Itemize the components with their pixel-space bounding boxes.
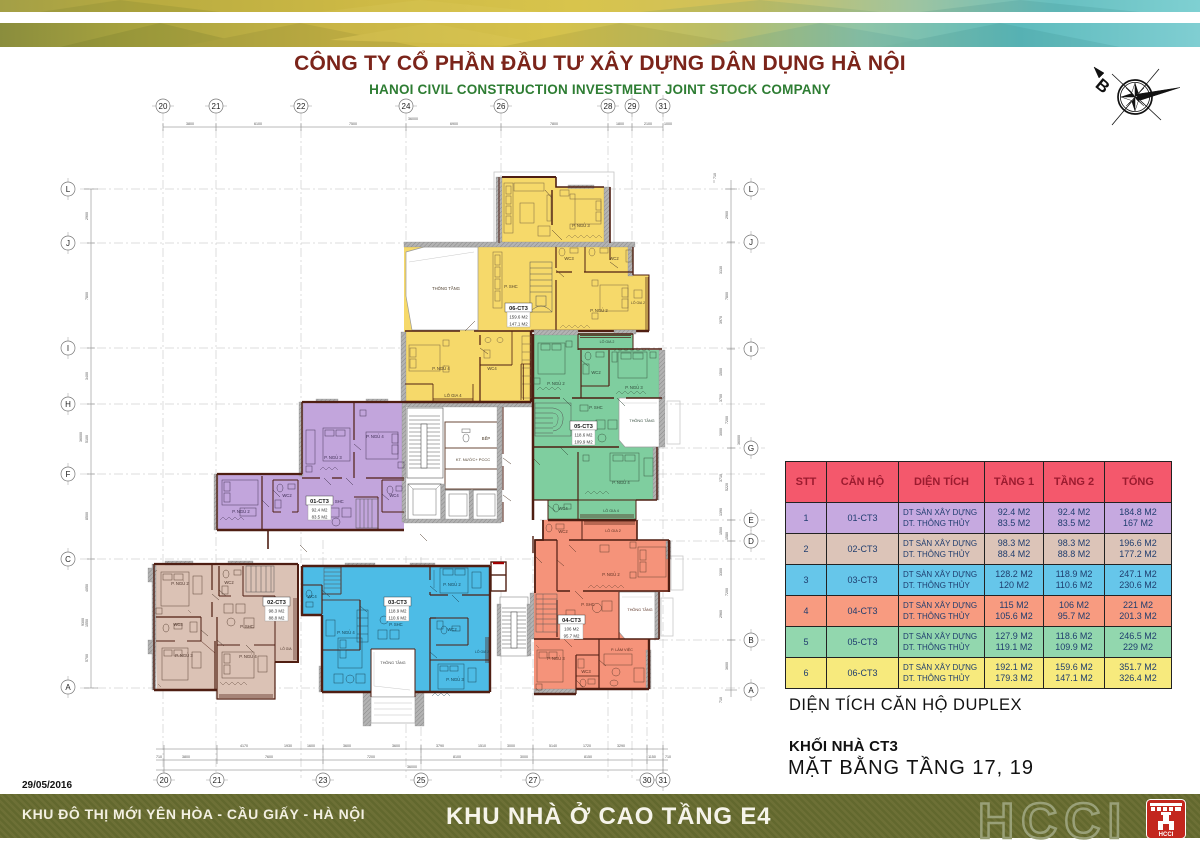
svg-text:1150: 1150 [648,755,656,759]
svg-text:23: 23 [319,776,328,785]
svg-text:36000: 36000 [407,765,417,769]
svg-text:BẾP: BẾP [482,436,491,441]
svg-text:WC3: WC3 [581,669,591,674]
svg-text:3790: 3790 [436,744,444,748]
svg-text:P. NGỦ 3: P. NGỦ 3 [547,656,565,661]
svg-text:THÔNG TẦNG: THÔNG TẦNG [432,286,460,291]
svg-text:P. SHC: P. SHC [389,622,402,627]
svg-text:159.6 M2: 159.6 M2 [509,315,528,320]
svg-text:2900: 2900 [725,211,729,219]
svg-text:2100: 2100 [644,122,652,126]
svg-text:F: F [66,470,71,479]
svg-text:P. SHC: P. SHC [240,624,253,629]
svg-text:WC2: WC2 [591,370,601,375]
svg-text:7500: 7500 [349,122,357,126]
svg-text:3000: 3000 [520,755,528,759]
svg-text:26: 26 [497,102,506,111]
svg-text:WC4: WC4 [389,493,399,498]
svg-text:P. NGỦ 2: P. NGỦ 2 [232,509,250,514]
svg-text:21: 21 [212,102,221,111]
svg-text:110.6 M2: 110.6 M2 [389,616,408,621]
svg-text:LÔ GIA 2: LÔ GIA 2 [631,300,645,305]
svg-text:3800: 3800 [182,755,190,759]
svg-text:P. SHC: P. SHC [504,284,517,289]
svg-text:2900: 2900 [85,212,89,220]
svg-text:LÔ GIA 4: LÔ GIA 4 [444,393,462,398]
svg-text:LÔ GIA 4: LÔ GIA 4 [603,508,619,513]
svg-text:7200: 7200 [725,416,729,424]
svg-text:B: B [1092,75,1114,97]
svg-text:P. NGỦ 4: P. NGỦ 4 [612,480,630,485]
svg-text:P. NGỦ 2: P. NGỦ 2 [171,581,189,586]
svg-text:1500: 1500 [719,527,723,535]
svg-text:I: I [67,344,69,353]
svg-text:710: 710 [665,755,671,759]
svg-text:J: J [749,238,753,247]
svg-text:P. NGỦ 2: P. NGỦ 2 [602,572,620,577]
svg-text:6900: 6900 [450,122,458,126]
svg-text:7600: 7600 [265,755,273,759]
svg-text:109.9 M2: 109.9 M2 [574,440,593,445]
svg-text:106 M2: 106 M2 [564,627,579,632]
svg-text:7800: 7800 [550,122,558,126]
svg-text:3800: 3800 [186,122,194,126]
svg-text:31: 31 [659,776,668,785]
svg-text:4050: 4050 [85,584,89,592]
svg-text:LÔ GIA: LÔ GIA [280,646,292,651]
svg-text:5100: 5100 [85,435,89,443]
svg-text:P. NGỦ 4: P. NGỦ 4 [337,630,355,635]
svg-text:WC3: WC3 [564,256,574,261]
svg-text:P. SHC: P. SHC [589,405,602,410]
svg-text:24: 24 [402,102,411,111]
svg-text:25: 25 [417,776,426,785]
svg-text:3290: 3290 [617,744,625,748]
svg-text:04-CT3: 04-CT3 [562,618,581,624]
svg-text:01-CT3: 01-CT3 [310,499,329,505]
svg-text:710: 710 [719,697,723,703]
svg-text:P. NGỦ 3: P. NGỦ 3 [175,653,193,658]
svg-text:5140: 5140 [549,744,557,748]
svg-text:E: E [748,516,753,525]
svg-text:P. NGỦ 4: P. NGỦ 4 [432,366,450,371]
svg-text:P. NGỦ 3: P. NGỦ 3 [324,455,342,460]
svg-text:1510: 1510 [478,744,486,748]
svg-text:A: A [748,686,754,695]
svg-text:THÔNG TẦNG: THÔNG TẦNG [380,660,405,665]
svg-text:8100: 8100 [453,755,461,759]
svg-text:05-CT3: 05-CT3 [574,424,593,430]
svg-text:6100: 6100 [254,122,262,126]
svg-text:118.9 M2: 118.9 M2 [389,609,408,614]
svg-text:P. NGỦ 3: P. NGỦ 3 [625,385,643,390]
svg-text:147.1 M2: 147.1 M2 [509,322,528,327]
svg-text:3710: 3710 [719,474,723,482]
svg-text:3970: 3970 [719,316,723,324]
svg-text:83.5 M2: 83.5 M2 [312,515,328,520]
svg-text:3600: 3600 [725,662,729,670]
svg-text:P. SHC: P. SHC [581,602,594,607]
svg-text:20: 20 [159,102,168,111]
svg-text:1550: 1550 [85,619,89,627]
svg-text:98.3 M2: 98.3 M2 [269,609,285,614]
svg-text:1600: 1600 [307,744,315,748]
svg-text:9300: 9300 [81,618,85,626]
svg-text:36000: 36000 [737,435,741,445]
svg-text:7800: 7800 [85,292,89,300]
svg-text:HCCI: HCCI [1159,832,1174,838]
svg-text:29: 29 [628,102,637,111]
svg-text:36000: 36000 [79,432,83,442]
svg-text:THÔNG TẦNG: THÔNG TẦNG [629,418,654,423]
svg-text:P. NGỦ 2: P. NGỦ 2 [443,582,461,587]
svg-text:WC2: WC2 [447,627,457,632]
svg-text:36000: 36000 [408,117,418,121]
svg-text:1580: 1580 [725,532,729,540]
svg-text:5220: 5220 [725,483,729,491]
svg-text:WC4: WC4 [487,366,497,371]
svg-text:WC3: WC3 [173,622,183,627]
svg-text:WC2: WC2 [609,256,619,261]
svg-text:4170: 4170 [240,744,248,748]
svg-text:WC2: WC2 [558,529,568,534]
svg-text:22: 22 [297,102,306,111]
svg-text:C: C [65,555,71,564]
svg-text:WC2: WC2 [282,493,292,498]
svg-text:7800: 7800 [725,292,729,300]
svg-text:L: L [749,185,754,194]
svg-text:3600: 3600 [343,744,351,748]
svg-text:LÔ GIA 2: LÔ GIA 2 [600,339,615,344]
svg-text:7200: 7200 [367,755,375,759]
svg-text:P. NGỦ 2: P. NGỦ 2 [590,308,608,313]
svg-text:1930: 1930 [284,744,292,748]
svg-text:1390: 1390 [719,508,723,516]
svg-text:3600: 3600 [392,744,400,748]
svg-text:LÔ GIA 2: LÔ GIA 2 [475,649,489,654]
svg-text:D: D [748,537,754,546]
svg-text:92.4 M2: 92.4 M2 [312,508,328,513]
svg-text:3130: 3130 [719,266,723,274]
svg-text:L: L [66,185,71,194]
svg-text:1800: 1800 [616,122,624,126]
svg-text:8500: 8500 [85,512,89,520]
svg-text:J: J [66,239,70,248]
svg-text:KT. NƯỚC+ PCCC: KT. NƯỚC+ PCCC [456,457,490,462]
svg-text:5700: 5700 [85,654,89,662]
svg-text:21: 21 [213,776,222,785]
svg-text:118.6 M2: 118.6 M2 [575,433,594,438]
svg-text:7200: 7200 [725,588,729,596]
svg-text:H: H [65,400,71,409]
svg-text:03-CT3: 03-CT3 [388,600,407,606]
svg-text:P. NGỦ 3: P. NGỦ 3 [446,677,464,682]
svg-text:20: 20 [160,776,169,785]
svg-text:27: 27 [529,776,538,785]
svg-text:P. NGỦ 4: P. NGỦ 4 [239,654,257,659]
svg-text:8150: 8150 [584,755,592,759]
svg-text:30: 30 [643,776,652,785]
svg-text:31: 31 [659,102,668,111]
svg-text:P. NGỦ 4: P. NGỦ 4 [366,434,384,439]
svg-text:3000: 3000 [719,428,723,436]
svg-text:3400: 3400 [85,372,89,380]
svg-text:1000: 1000 [664,122,672,126]
svg-text:THÔNG TẦNG: THÔNG TẦNG [627,607,652,612]
svg-text:710: 710 [156,755,162,759]
svg-text:3300: 3300 [719,568,723,576]
svg-text:P. NGỦ 3: P. NGỦ 3 [572,223,590,228]
svg-text:WC4: WC4 [307,594,317,599]
svg-text:28: 28 [604,102,613,111]
svg-text:G: G [748,444,754,453]
svg-text:02-CT3: 02-CT3 [267,600,286,606]
svg-text:WC4: WC4 [558,506,568,511]
svg-text:88.8 M2: 88.8 M2 [269,616,285,621]
svg-text:1720: 1720 [583,744,591,748]
svg-text:710: 710 [713,173,717,179]
svg-text:LÔ GIA 2: LÔ GIA 2 [605,528,621,533]
svg-text:06-CT3: 06-CT3 [509,306,528,312]
svg-text:3000: 3000 [507,744,515,748]
svg-text:B: B [748,636,753,645]
svg-text:1500: 1500 [719,368,723,376]
svg-text:WC2: WC2 [224,580,234,585]
svg-text:2960: 2960 [719,610,723,618]
svg-text:95.7 M2: 95.7 M2 [564,634,580,639]
svg-text:P. NGỦ 2: P. NGỦ 2 [547,381,565,386]
svg-text:A: A [65,683,71,692]
svg-text:I: I [750,345,752,354]
svg-text:P. LÀM VIỆC: P. LÀM VIỆC [611,647,633,652]
svg-text:3700: 3700 [719,394,723,402]
